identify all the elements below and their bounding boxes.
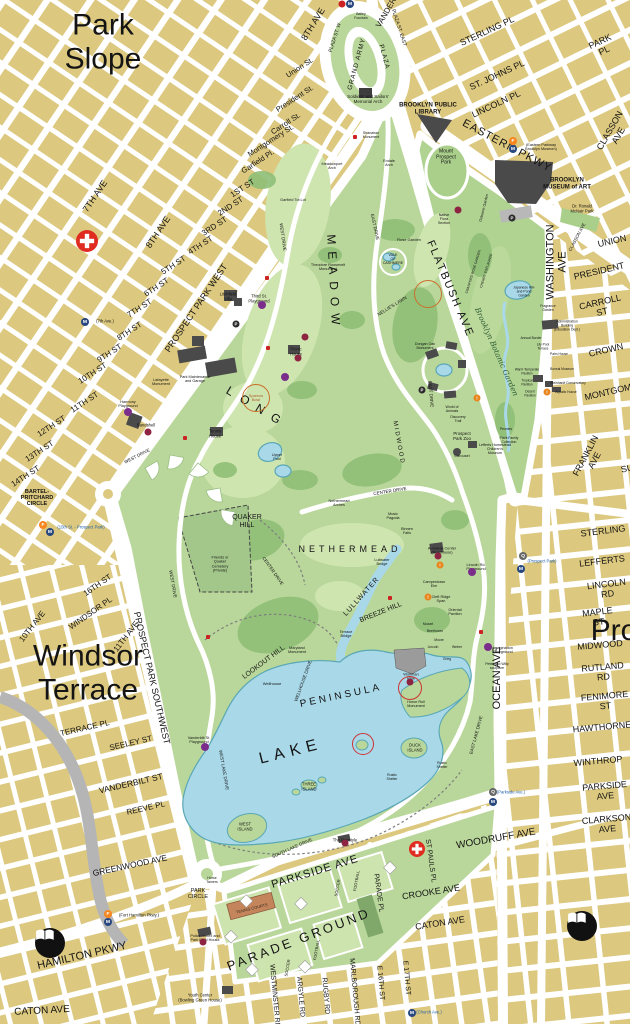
subway-q-icon: Q [489,788,497,796]
highlight-circle-icon [352,733,374,755]
parking-icon: P [233,321,240,328]
park-entrance-icon [183,436,187,440]
park-entrance-icon [388,596,392,600]
park-entrance-icon [353,135,357,139]
subway-line-icon [339,1,346,8]
subway-f-icon: F [39,521,47,529]
parking-icon: P [509,215,516,222]
park-entrance-icon [265,276,269,280]
prospect-park-map: Park SlopeWindsor TerraceProVANDERBILT8T… [0,0,630,1024]
restroom-icon [342,840,349,847]
subway-m-icon: M [408,1009,416,1017]
subway-m-icon: M [346,0,354,8]
park-entrance-icon [206,635,210,639]
playground-icon [468,568,476,576]
subway-m-icon: M [104,918,112,926]
food-icon: ! [544,389,551,396]
food-icon: ! [437,562,444,569]
restroom-icon [200,939,207,946]
subway-m-icon: M [489,798,497,806]
restroom-icon [435,553,442,560]
restroom-icon [145,429,152,436]
subway-m-icon: M [509,145,517,153]
playground-icon [124,408,132,416]
subway-m-icon: M [517,565,525,573]
subway-f-icon: F [104,910,112,918]
park-entrance-icon [266,346,270,350]
parking-icon: P [419,387,426,394]
park-entrance-icon [479,630,483,634]
library-book-icon [567,911,597,941]
hospital-cross-icon [76,230,98,252]
playground-icon [258,301,266,309]
restroom-icon [302,334,309,341]
subway-q-icon: Q [519,552,527,560]
subway-m-icon: M [81,318,89,326]
subway-f-icon: F [509,137,517,145]
subway-m-icon: M [46,528,54,536]
highlight-circle-icon [242,384,270,412]
highlight-circle-icon [414,280,442,308]
hospital-cross-icon [409,841,425,857]
food-icon: ! [474,395,481,402]
food-icon: ! [425,594,432,601]
playground-icon [281,373,289,381]
library-book-icon [35,928,65,958]
icon-layer: MMMMMMMMFFFQQPPP!!!! [0,0,630,1024]
restroom-icon [295,355,302,362]
restroom-icon [455,207,462,214]
playground-icon [484,643,492,651]
playground-icon [201,743,209,751]
highlight-circle-icon [398,676,422,700]
